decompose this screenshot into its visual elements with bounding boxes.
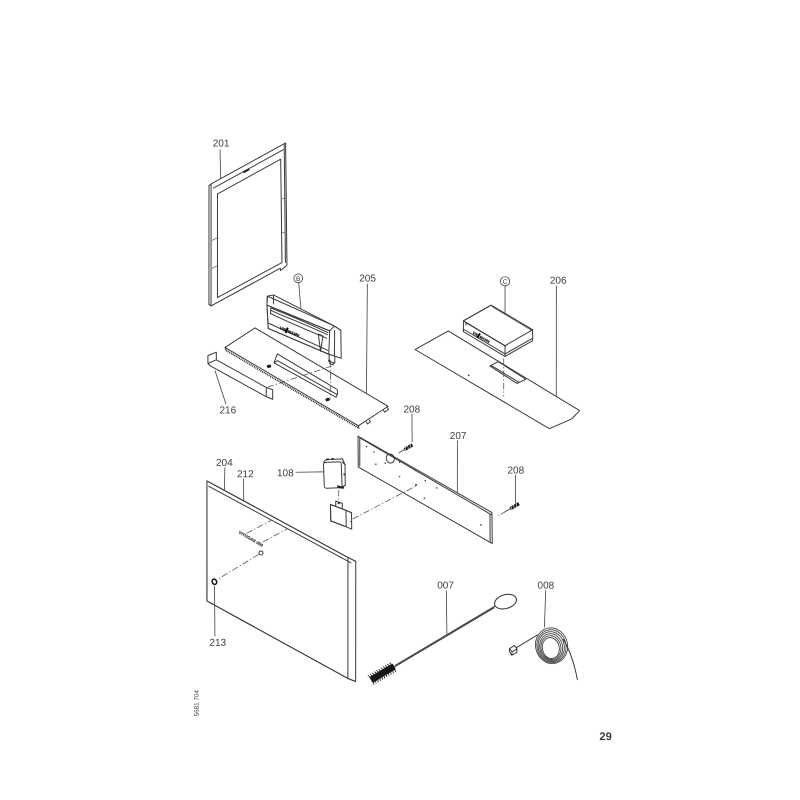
svg-text:216: 216 [219, 405, 236, 416]
svg-text:201: 201 [213, 139, 230, 150]
svg-text:208: 208 [507, 466, 524, 477]
svg-text:205: 205 [359, 273, 376, 284]
svg-text:212: 212 [237, 469, 254, 480]
svg-text:B: B [296, 276, 301, 283]
svg-text:213: 213 [209, 638, 226, 649]
svg-text:108: 108 [277, 468, 294, 479]
svg-text:206: 206 [550, 276, 567, 287]
svg-text:29: 29 [599, 731, 611, 743]
svg-text:007: 007 [437, 581, 454, 592]
svg-text:5681 704: 5681 704 [194, 690, 201, 717]
svg-text:008: 008 [538, 581, 555, 592]
svg-text:C: C [503, 279, 508, 286]
svg-text:208: 208 [403, 405, 420, 416]
svg-text:204: 204 [216, 458, 233, 469]
svg-text:207: 207 [450, 431, 467, 442]
